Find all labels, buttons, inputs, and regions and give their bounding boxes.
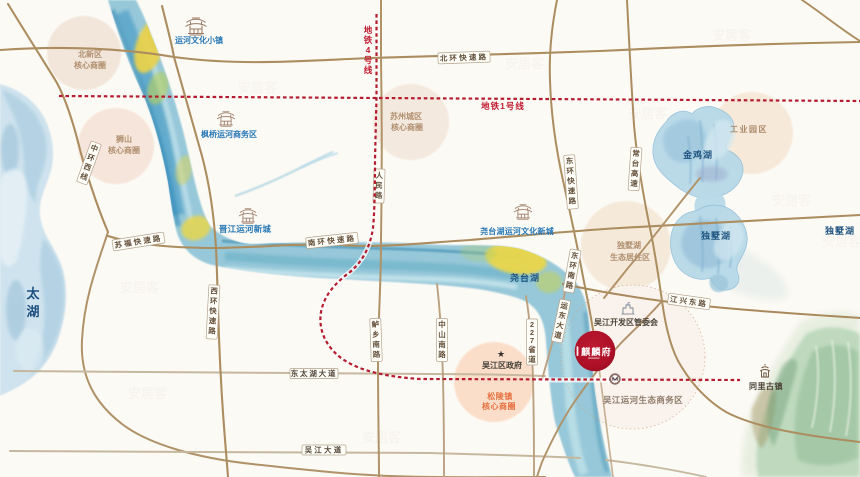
svg-text:麒麟府: 麒麟府 [581,346,612,357]
svg-text:安居客: 安居客 [772,193,812,208]
svg-text:安居客: 安居客 [712,28,752,43]
svg-text:安居客: 安居客 [238,80,278,95]
svg-text:尧台湖运河文化新城: 尧台湖运河文化新城 [480,226,554,236]
svg-text:安居客: 安居客 [822,234,860,249]
svg-text:吴江运河生态商务区: 吴江运河生态商务区 [603,395,683,405]
svg-text:同里古镇: 同里古镇 [749,381,783,391]
svg-text:核心商圈: 核心商圈 [391,122,423,132]
svg-text:金鸡湖: 金鸡湖 [682,149,713,160]
svg-text:地铁1号线: 地铁1号线 [481,101,525,111]
svg-text:独墅湖: 独墅湖 [700,230,731,241]
svg-text:独墅湖: 独墅湖 [824,225,855,236]
svg-text:松陵镇: 松陵镇 [487,391,513,401]
svg-text:安居客: 安居客 [505,56,545,71]
svg-text:生态居住区: 生态居住区 [610,252,650,262]
svg-text:独墅湖: 独墅湖 [616,240,641,250]
svg-text:尧台湖: 尧台湖 [510,272,540,283]
svg-text:吴江大道: 吴江大道 [305,445,344,455]
svg-text:安居客: 安居客 [128,386,168,401]
svg-text:狮山: 狮山 [115,134,132,144]
svg-text:吴江区政府: 吴江区政府 [482,360,522,370]
svg-text:工业园区: 工业园区 [730,124,768,134]
svg-text:东太湖大道: 东太湖大道 [291,368,338,378]
svg-text:核心商圈: 核心商圈 [482,401,516,411]
svg-text:北环快速路: 北环快速路 [440,51,489,63]
svg-text:晋江运河新城: 晋江运河新城 [219,224,272,234]
svg-text:苏州城区: 苏州城区 [390,111,422,121]
svg-text:安居客: 安居客 [120,280,160,295]
svg-text:核心商圈: 核心商圈 [74,60,106,70]
svg-text:安居客: 安居客 [362,430,402,445]
svg-text:核心商圈: 核心商圈 [108,145,140,155]
svg-text:北新区: 北新区 [78,49,102,59]
svg-text:吴江开发区管委会: 吴江开发区管委会 [594,317,658,327]
svg-text:★: ★ [497,349,505,359]
svg-text:枫桥运河商务区: 枫桥运河商务区 [201,129,257,139]
svg-text:运河文化小镇: 运河文化小镇 [175,35,223,45]
